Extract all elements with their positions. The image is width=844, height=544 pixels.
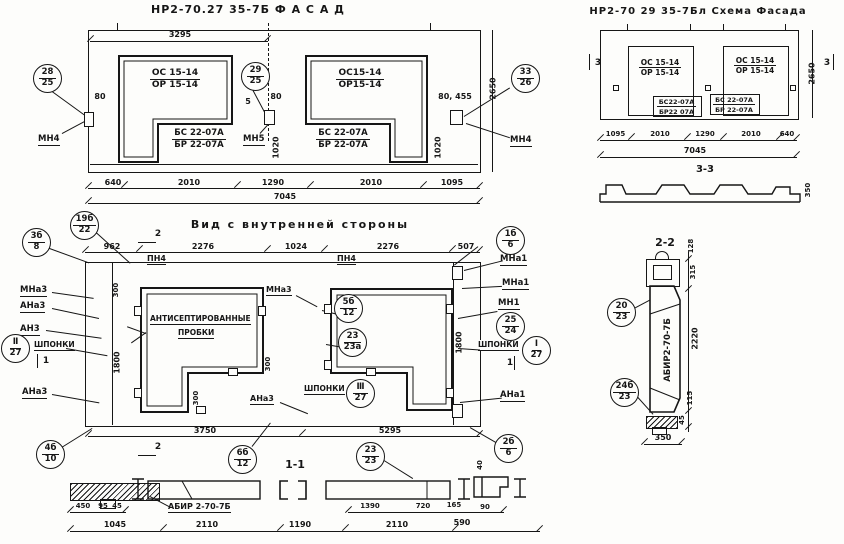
sub-dim-line-right [348,512,504,513]
label-mna1-right-2: МНа1 [502,278,529,290]
dim-640: 640 [88,178,138,187]
label-mna3-left: МНа3 [20,285,47,297]
label-mna3-inner: МНа3 [266,285,292,296]
dim-2010: 2010 [326,178,416,187]
window-anchor [134,388,142,398]
dim-tick [160,524,167,531]
internal-window-left [140,287,264,413]
dim-165: 165 [443,501,465,509]
section-2-2-dim-350-line [644,444,682,445]
balloon-19b-22: 19б22 [70,211,99,240]
label-mn4-left: МН4 [38,134,60,146]
dim-tick [307,181,314,188]
dim-2010: 2010 [633,130,687,138]
section-mark-1-left: 1 [40,356,52,366]
window-anchor [366,368,376,376]
facade-dim-total-line [88,203,480,204]
balloon-23-23a: 2323а [338,328,367,357]
balloon-25-24: 2524 [496,312,525,341]
dim-2010: 2010 [724,130,778,138]
balloon-6b-12: 6б12 [228,445,257,474]
dim-315: 315 [689,261,697,283]
anchor-mark [450,110,463,125]
dim-80: 80 [266,92,286,101]
dim-2110: 2110 [367,520,427,529]
dim-7045: 7045 [665,146,725,155]
scheme-box-left-mark: БС22-07А БР22 07А [654,97,699,116]
facade-sub-right-mark: БС 22-07А БР 22-07А [310,128,376,150]
dim-1800-right: 1800 [455,326,464,360]
window-anchor [258,306,266,316]
anchor-mark [264,110,275,125]
window-anchor [446,304,454,314]
facade-dim-row [88,188,480,189]
scheme-window-right-mark: ОС 15-14 ОР 15-14 [725,56,785,76]
section-mark-3-left: 3 [592,58,604,68]
facade-base-line [90,164,478,165]
balloon-20-23: 2023 [607,298,636,327]
section-mark-3-right: 3 [821,58,833,68]
section-mark-1-line [37,354,38,368]
section-mark-2-top: 2 [152,229,164,239]
dim-7045: 7045 [250,192,320,201]
dim-1024: 1024 [268,242,324,251]
label-ana3-inner: АНа3 [250,394,274,405]
dim-1095: 1095 [600,130,631,138]
dim-115: 115 [686,388,694,408]
label-ana3-left-2: АНа3 [22,387,47,399]
facade-dim-3295: 3295 [140,30,220,39]
scheme-top-tick [723,24,724,30]
window-anchor [228,368,238,376]
facade-title: НР2-70.27 35-7Б Ф А С А Д [118,3,378,16]
window-anchor [134,306,142,316]
facade-top-tick [430,23,431,30]
dim-2010: 2010 [144,178,234,187]
leader-line [52,91,85,115]
dim-590: 590 [440,518,484,527]
dim-5: 5 [242,97,254,106]
balloon-1b-6: 1б6 [496,226,525,255]
section-mark-2-line [138,455,156,456]
label-shponki-right: ШПОНКИ [478,340,519,351]
dim-40: 40 [476,455,484,475]
label-shponki-inner: ШПОНКИ [304,384,345,395]
section-mark-1-line [514,356,515,370]
dim-1290: 1290 [688,130,722,138]
balloon-23-23: 2323 [356,442,385,471]
dim-300: 300 [264,352,272,376]
dim-350: 350 [804,177,812,203]
window-anchor [446,388,454,398]
scheme-top-tick [690,24,691,30]
dim-640: 640 [774,130,800,138]
balloon-2b-6: 2б6 [494,434,523,463]
label-abir-vertical: АБИР2-70-7Б [663,305,673,395]
anchor-dot [613,85,619,91]
scheme-dim-total-line [600,157,797,158]
scheme-window-left-mark: ОС 15-14 ОР 15-14 [630,58,690,78]
internal-title: Вид с внутренней стороны [185,218,415,231]
window-anchor [196,406,206,414]
window-anchor [324,360,332,370]
section-mark-2-line [138,242,156,243]
dim-tick [342,524,349,531]
section-mark-3-line [833,54,834,70]
dim-720: 720 [403,502,443,510]
label-ana3-left: АНа3 [20,301,45,313]
balloon-5b-12: 5б12 [334,294,363,323]
label-mn5: МН5 [243,134,265,146]
dim-128: 128 [687,235,695,257]
anchor-dot [705,85,711,91]
facade-window-left-mark: ОС 15-14 ОР 15-14 [140,68,210,92]
label-mn1-right: МН1 [498,298,520,310]
dim-1390: 1390 [340,502,400,510]
window-anchor [324,304,332,314]
dim-450: 450 [70,502,96,510]
label-abir: АБИР 2-70-7Б [168,502,231,513]
anchor-mark [84,112,94,127]
dim-350: 350 [646,433,680,442]
note-probki: ПРОБКИ [178,328,214,339]
scheme-box-right-mark: БС 22-07А БР 22-07А [711,95,757,114]
scheme-title: НР2-70 29 35-7Бл Схема Фасада [583,6,813,17]
section-mark-2-bottom: 2 [152,442,164,452]
dim-80-455: 80, 455 [432,92,478,101]
dim-2110: 2110 [177,520,237,529]
facade-sub-left-mark: БС 22-07А БР 22-07А [166,128,232,150]
dim-5295: 5295 [350,426,430,435]
balloon-I-27: Ⅰ27 [522,336,551,365]
facade-dim-line-3295 [90,41,268,42]
label-ana1-right: АНа1 [500,390,525,402]
dim-45: 45 [678,412,686,428]
label-mna1-right-1: МНа1 [500,254,527,266]
balloon-III-27: Ⅲ27 [346,379,375,408]
balloon-4b-10: 4б10 [36,440,65,469]
dim-1020-left: 1020 [272,134,281,162]
section-mark-3-line [589,54,590,70]
balloon-II-27: Ⅱ27 [1,334,30,363]
dim-45: 45 [110,502,124,510]
corner-anchor [452,266,463,280]
anchor-dot [790,85,796,91]
scheme-dim-row [600,140,797,141]
dim-1095: 1095 [424,178,480,187]
balloon-24b-23: 24б23 [610,378,639,407]
dim-90: 90 [476,503,494,511]
dim-3750: 3750 [165,426,245,435]
balloon-28-25: 2825 [33,64,62,93]
internal-dim-row-top [85,252,480,253]
dim-2276: 2276 [355,242,421,251]
section-2-2-title: 2-2 [645,236,685,249]
dim-1020-right: 1020 [434,134,443,162]
label-an3-left: АН3 [20,324,40,336]
scheme-top-tick [785,24,786,30]
dim-tick [299,429,306,436]
section-1-1-title: 1-1 [275,458,315,471]
blueprint-canvas: НР2-70.27 35-7Б Ф А С А Д 3295 ОС 15-14 … [0,0,844,544]
balloon-33-26: 3326 [511,64,540,93]
dim-1290: 1290 [240,178,306,187]
section-3-3-title: 3-3 [690,164,720,175]
main-dim-line [70,531,540,532]
scheme-top-tick [627,24,628,30]
corner-anchor [452,404,463,418]
internal-dim-row-bottom [88,436,480,437]
dim-1800-left: 1800 [113,346,122,380]
balloon-3b-8: 3б8 [22,228,51,257]
dim-1190: 1190 [270,520,330,529]
dim-2220: 2220 [691,324,700,354]
dim-1045: 1045 [85,520,145,529]
dim-95: 95 [96,502,110,510]
dim-2276: 2276 [170,242,236,251]
sub-dim-line-left [70,512,126,513]
label-mn4-right: МН4 [510,135,532,147]
balloon-29-25: 2925 [241,62,270,91]
dim-300: 300 [112,278,120,302]
dim-80: 80 [90,92,110,101]
scheme-dim-2650: 2650 [808,59,817,89]
facade-window-right-mark: ОС15-14 ОР15-14 [325,68,395,92]
leader-line [60,428,93,449]
section-3-3-profile [598,179,804,207]
leader-line [44,246,89,263]
facade-top-tick [117,23,118,30]
section-2-2-cap-core [653,265,672,280]
note-antiseptic: АНТИСЕПТИРОВАННЫЕ [150,314,251,325]
dim-tick [136,245,143,252]
